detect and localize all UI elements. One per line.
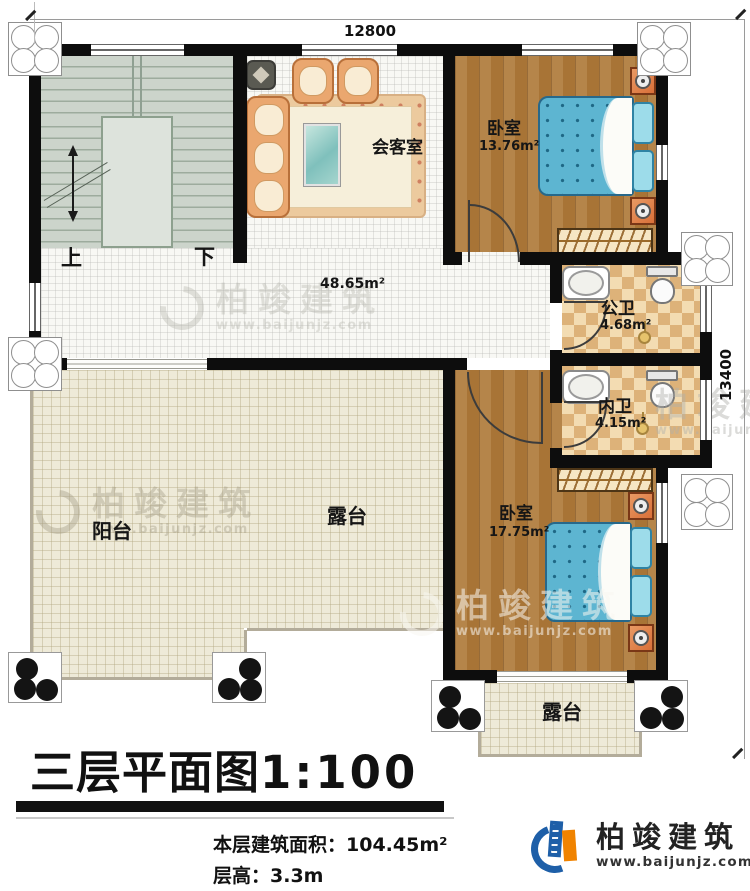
stair-flight-left	[41, 116, 101, 248]
stair-down-label: 下	[194, 246, 215, 269]
sofa-cushion	[254, 104, 284, 136]
plan-title-row: 三层平面图1:100	[30, 736, 418, 801]
stair-arrow-up-icon	[68, 145, 78, 156]
toilet-bowl	[650, 382, 675, 408]
wall	[550, 448, 562, 455]
terrace-parapet	[478, 754, 642, 757]
wall	[443, 252, 462, 265]
lamp-icon	[635, 203, 651, 219]
wall	[656, 180, 668, 265]
hall-area-label: 48.65m²	[320, 277, 385, 292]
stair-up-label: 上	[61, 247, 82, 270]
wall	[550, 353, 712, 366]
floor-area-value: 104.45m²	[346, 834, 447, 856]
pillar-icon	[212, 652, 266, 703]
plan-scale: 1:100	[260, 746, 418, 799]
pillow	[630, 575, 652, 617]
room-area-public-bathroom: 4.68m²	[600, 319, 651, 333]
terrace-door-sill	[497, 671, 627, 682]
dimension-line-right	[744, 19, 745, 759]
room-label-balcony: 阳台	[92, 520, 132, 542]
company-name: 柏竣建筑	[596, 822, 750, 854]
window	[700, 285, 712, 332]
wall	[233, 44, 247, 263]
company-logo: 柏竣建筑 www.baijunjz.com	[530, 817, 750, 875]
wardrobe	[557, 228, 653, 254]
sink-basin	[568, 270, 604, 296]
terrace-parapet	[247, 628, 443, 631]
armchair-cushion	[299, 66, 327, 96]
pillow	[632, 150, 654, 192]
ac-outdoor-unit-icon	[681, 232, 733, 286]
company-website: www.baijunjz.com	[596, 854, 750, 870]
dimension-top-value: 12800	[325, 22, 415, 40]
company-logo-icon	[530, 817, 586, 875]
room-label-public-bathroom: 公卫	[601, 300, 635, 319]
sofa-cushion	[254, 142, 284, 174]
ac-outdoor-unit-icon	[637, 22, 691, 76]
window	[700, 380, 712, 440]
extension-line	[34, 2, 35, 44]
lamp-icon	[633, 630, 649, 646]
stair-rail	[132, 56, 134, 116]
room-label-bedroom-top: 卧室	[487, 120, 521, 139]
pillow	[632, 102, 654, 144]
stair-flight-right	[173, 116, 233, 248]
toilet-tank	[646, 266, 678, 277]
terrace-parapet	[30, 370, 33, 680]
room-label-terrace-bottom: 露台	[542, 701, 582, 723]
floor-height-value: 3.3m	[270, 865, 323, 887]
wall	[207, 358, 467, 370]
window	[522, 44, 613, 56]
stair-rail	[140, 56, 142, 116]
room-label-terrace-left: 露台	[327, 505, 367, 527]
wall	[656, 543, 668, 683]
sofa-cushion	[254, 180, 284, 212]
room-label-bedroom-bottom: 卧室	[499, 505, 533, 524]
wall	[656, 455, 668, 483]
ac-outdoor-unit-icon	[8, 22, 62, 76]
pillow	[630, 527, 652, 569]
wall	[443, 56, 455, 252]
window	[29, 283, 41, 331]
bed-sheet	[600, 98, 632, 194]
wall	[550, 455, 712, 468]
wall	[29, 44, 41, 283]
floor-area-row: 本层建筑面积：104.45m²	[213, 830, 447, 857]
floor-height-label: 层高：	[213, 865, 270, 887]
pillar-icon	[634, 680, 688, 732]
pillar-icon	[431, 680, 485, 732]
room-area-bedroom-top: 13.76m²	[479, 140, 539, 154]
window	[302, 44, 397, 56]
coffee-table	[304, 124, 340, 186]
bed-sheet	[598, 524, 630, 620]
stair-landing	[101, 116, 173, 248]
plant-stand	[246, 60, 276, 90]
wall	[443, 370, 455, 683]
wall	[397, 44, 522, 56]
pillar-icon	[8, 652, 62, 703]
toilet-bowl	[650, 278, 675, 304]
stair-flight-top	[41, 56, 233, 116]
window	[656, 145, 668, 180]
lamp-icon	[633, 498, 649, 514]
toilet-tank	[646, 370, 678, 381]
hall-floor	[41, 248, 550, 358]
floor-area-label: 本层建筑面积：	[213, 834, 346, 856]
terrace-left-floor	[33, 370, 443, 628]
stair-direction-arrow	[72, 156, 74, 212]
armchair-cushion	[344, 66, 372, 96]
title-grayline	[16, 817, 454, 819]
floor-height-row: 层高：3.3m	[213, 861, 323, 888]
room-label-reception: 会客室	[372, 139, 423, 158]
dimension-right-value: 13400	[716, 337, 736, 413]
window	[656, 483, 668, 543]
ac-outdoor-unit-icon	[8, 337, 62, 391]
room-label-inner-bathroom: 内卫	[598, 398, 632, 417]
dimension-tick	[732, 748, 743, 759]
window	[91, 44, 184, 56]
door-leaf	[541, 372, 543, 444]
french-door-sill	[67, 359, 207, 369]
ac-outdoor-unit-icon	[681, 474, 733, 530]
title-underline	[16, 801, 444, 812]
stair-arrow-down-icon	[68, 211, 78, 222]
dimension-line-top	[30, 19, 744, 20]
wall	[550, 263, 562, 303]
floor-plan-canvas: 柏竣建筑 www.baijunjz.com 柏竣建筑 www.baijunjz.…	[0, 0, 750, 891]
plan-title: 三层平面图	[30, 746, 260, 799]
wardrobe	[557, 468, 653, 492]
room-area-inner-bathroom: 4.15m²	[595, 417, 646, 431]
room-area-bedroom-bottom: 17.75m²	[489, 526, 549, 540]
